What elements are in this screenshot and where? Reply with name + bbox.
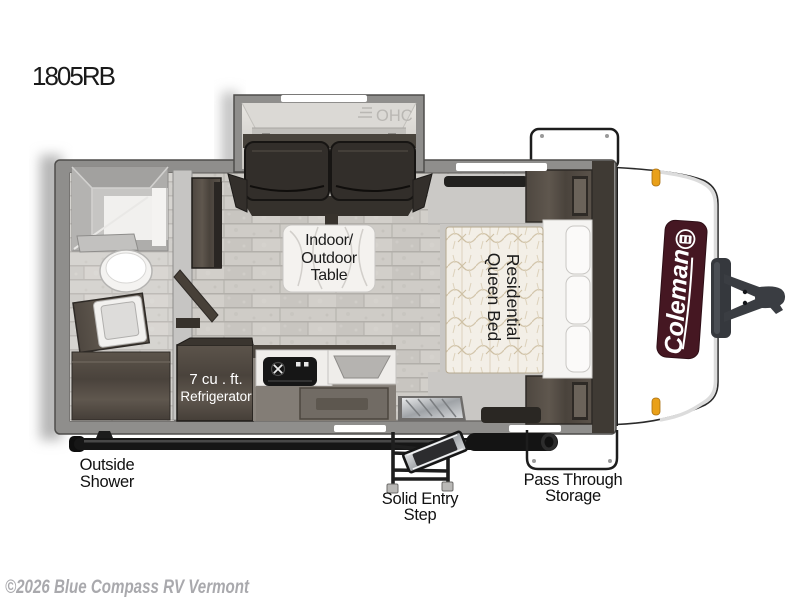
svg-text:Table: Table [311, 267, 348, 284]
svg-text:Outdoor: Outdoor [301, 250, 358, 267]
svg-text:Step: Step [404, 506, 437, 524]
svg-text:Refrigerator: Refrigerator [180, 389, 252, 404]
svg-text:OHC: OHC [376, 107, 413, 125]
svg-text:Indoor/: Indoor/ [305, 232, 354, 249]
svg-text:7 cu . ft.: 7 cu . ft. [189, 371, 242, 388]
svg-text:Shower: Shower [80, 473, 135, 491]
svg-text:Storage: Storage [545, 487, 601, 505]
svg-text:ResidentialQueen Bed: ResidentialQueen Bed [484, 253, 523, 342]
svg-text:©2026 Blue Compass RV Vermont: ©2026 Blue Compass RV Vermont [5, 577, 250, 598]
svg-text:1805RB: 1805RB [32, 61, 115, 91]
svg-text:Outside: Outside [80, 456, 135, 474]
